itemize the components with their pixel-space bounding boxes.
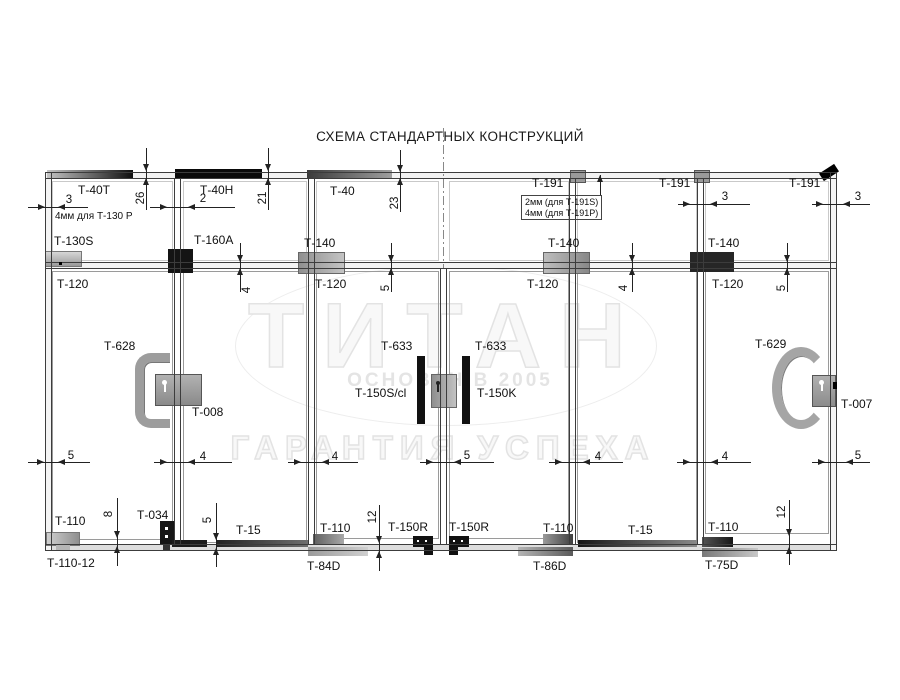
- pivot-t150r-right-dot: [461, 540, 463, 542]
- fitting-t110-door3: [313, 534, 344, 544]
- dim-arrow: [426, 459, 433, 465]
- dim-value-5: 5: [847, 450, 869, 462]
- label-t86d: Т-86D: [533, 559, 566, 573]
- top-rail-line: [45, 178, 836, 179]
- label-t629: Т-629: [755, 337, 786, 351]
- pivot-t150r-left: [413, 536, 433, 547]
- partition-line: [314, 178, 315, 544]
- dim-value-5: 5: [456, 450, 478, 462]
- label-t84d: Т-84D: [307, 559, 340, 573]
- fitting-t140-left: [298, 252, 345, 274]
- label-t150k: Т-150K: [477, 386, 516, 400]
- dim-value-3: 3: [714, 191, 736, 203]
- lock-t007: [812, 375, 836, 407]
- dim-arrow: [376, 551, 382, 558]
- label-t160a: Т-160А: [194, 233, 233, 247]
- partition-line: [174, 178, 175, 544]
- dim-value-5: 5: [202, 509, 214, 531]
- dim-arrow: [37, 459, 44, 465]
- dim-value-4: 4: [241, 279, 253, 301]
- fitting-t140-center: [543, 252, 590, 274]
- lock-t008: [155, 374, 202, 406]
- lock-t008-keyhole: [164, 384, 166, 392]
- lock-t007-bolt: [833, 382, 837, 389]
- plate-t86d: [518, 547, 573, 556]
- label-t008: Т-008: [192, 405, 223, 419]
- dim-value-3: 3: [847, 191, 869, 203]
- dim-arrow: [265, 164, 271, 171]
- dim-value-21: 21: [257, 187, 269, 209]
- label-t40h: Т-40Н: [200, 183, 233, 197]
- partition-line: [697, 178, 698, 544]
- fitting-t130s-dot: [59, 262, 62, 265]
- dim-arrow: [160, 204, 167, 210]
- dim-arrow: [213, 548, 219, 555]
- bottom-rail-line: [45, 544, 836, 545]
- right-wall-line: [830, 172, 831, 551]
- drawing-canvas: { "title": "СХЕМА СТАНДАРТНЫХ КОНСТРУКЦИ…: [0, 0, 900, 700]
- dim-arrow: [114, 546, 120, 553]
- pivot-t150r-right: [449, 536, 469, 547]
- note-t130: 4мм для Т-130 Р: [55, 211, 133, 222]
- partition-line: [180, 178, 181, 544]
- pivot-t150r-left-foot: [424, 547, 433, 555]
- dim-arrow: [237, 268, 243, 275]
- right-wall-line: [836, 172, 837, 551]
- dim-value-8: 8: [103, 503, 115, 525]
- dim-arrow: [683, 459, 690, 465]
- dim-value-26: 26: [135, 187, 147, 209]
- note-t191-line1: 2мм (для Т-191S): [525, 197, 598, 208]
- label-t130s: Т-130S: [54, 234, 93, 248]
- handle-t633-right: [462, 356, 470, 424]
- dim-value-23: 23: [389, 192, 401, 214]
- plate-t84d: [308, 547, 368, 556]
- label-t633: Т-633: [475, 339, 506, 353]
- dim-arrow: [555, 459, 562, 465]
- pivot-t150r-left-dot: [425, 540, 427, 542]
- label-t110: Т-110: [708, 520, 738, 534]
- dim-value-12: 12: [367, 506, 379, 528]
- label-t120: Т-120: [527, 277, 558, 291]
- dim-value-4: 4: [714, 451, 736, 463]
- center-stile-line: [440, 268, 441, 544]
- dim-arrow: [38, 204, 45, 210]
- dim-value-3: 3: [58, 194, 80, 206]
- center-stile-line: [446, 268, 447, 544]
- label-t40t: Т-40Т: [78, 183, 110, 197]
- dim-arrow: [294, 459, 301, 465]
- label-t628: Т-628: [104, 339, 135, 353]
- dim-value-5: 5: [60, 450, 82, 462]
- label-t15: Т-15: [628, 523, 653, 537]
- partition-line: [569, 178, 570, 544]
- dim-arrow: [597, 175, 603, 182]
- fitting-t034-dot: [165, 535, 168, 538]
- profile-t40h: [175, 169, 262, 178]
- transom-panel: [577, 181, 697, 261]
- center-axis-line: [443, 128, 444, 268]
- dim-value-5: 5: [776, 277, 788, 299]
- dim-value-12: 12: [776, 501, 788, 523]
- dim-value-4: 4: [324, 451, 346, 463]
- dim-arrow: [683, 201, 690, 207]
- dim-value-4: 4: [192, 451, 214, 463]
- label-t140: Т-140: [708, 236, 739, 250]
- dim-arrow: [786, 547, 792, 554]
- fitting-t034-dot: [165, 527, 168, 530]
- fixed-panel-5: [577, 271, 697, 543]
- dim-arrow: [784, 268, 790, 275]
- label-t150scl: Т-150S/cl: [355, 386, 406, 400]
- label-t007: Т-007: [841, 397, 872, 411]
- label-t140: Т-140: [548, 236, 579, 250]
- dim-arrow: [786, 529, 792, 536]
- drawing-title: СХЕМА СТАНДАРТНЫХ КОНСТРУКЦИЙ: [0, 129, 900, 144]
- partition-line: [308, 178, 309, 544]
- label-t110-12: Т-110-12: [47, 556, 95, 570]
- partition-line: [575, 178, 576, 544]
- dim-value-4: 4: [618, 277, 630, 299]
- dim-arrow: [816, 201, 823, 207]
- label-t120: Т-120: [315, 277, 346, 291]
- pivot-t150r-left-dot: [417, 540, 419, 542]
- dim-arrow: [629, 255, 635, 262]
- dim-arrow: [265, 178, 271, 185]
- label-t191: Т-191: [789, 176, 820, 190]
- dim-arrow: [237, 255, 243, 262]
- lock-t150: [431, 374, 457, 408]
- label-t15: Т-15: [236, 523, 261, 537]
- pivot-t150r-right-dot: [453, 540, 455, 542]
- fitting-t110-door6: [702, 537, 733, 547]
- dim-arrow: [143, 164, 149, 171]
- dim-arrow: [388, 255, 394, 262]
- left-wall-line: [45, 172, 46, 551]
- dim-arrow: [629, 268, 635, 275]
- label-t150r: Т-150R: [388, 520, 428, 534]
- dim-arrow: [784, 255, 790, 262]
- note-t191: 2мм (для Т-191S) 4мм (для Т-191P): [521, 195, 602, 220]
- lock-t007-keyhole: [821, 384, 823, 391]
- dim-arrow: [397, 178, 403, 185]
- label-t75d: Т-75D: [705, 558, 738, 572]
- label-t110: Т-110: [320, 521, 350, 535]
- pivot-t150r-right-foot: [449, 547, 458, 555]
- partition-line: [703, 178, 704, 544]
- dim-arrow: [397, 165, 403, 172]
- lock-t150-keyhole: [437, 384, 439, 392]
- label-t191: Т-191: [659, 176, 690, 190]
- dim-arrow: [818, 459, 825, 465]
- note-t191-line2: 4мм (для Т-191P): [525, 208, 598, 219]
- label-t140: Т-140: [304, 236, 335, 250]
- dim-value-5: 5: [380, 277, 392, 299]
- label-t633: Т-633: [381, 339, 412, 353]
- label-t120: Т-120: [712, 277, 743, 291]
- dim-arrow: [160, 459, 167, 465]
- label-t40: Т-40: [330, 184, 355, 198]
- dim-arrow: [376, 536, 382, 543]
- dim-arrow: [143, 178, 149, 185]
- dim-value-4: 4: [587, 451, 609, 463]
- label-t110: Т-110: [543, 521, 573, 535]
- label-t191: Т-191: [532, 176, 563, 190]
- left-wall-line: [51, 172, 52, 551]
- dim-arrow: [213, 533, 219, 540]
- label-t150r: Т-150R: [449, 520, 489, 534]
- label-t034: Т-034: [137, 508, 168, 522]
- mid-rail-line: [45, 262, 836, 263]
- dim-arrow: [388, 268, 394, 275]
- bottom-rail-line: [45, 550, 836, 551]
- handle-t633-left: [417, 356, 425, 424]
- top-rail-line: [45, 172, 836, 173]
- dim-arrow: [114, 531, 120, 538]
- label-t120: Т-120: [57, 277, 88, 291]
- label-t110: Т-110: [55, 514, 85, 528]
